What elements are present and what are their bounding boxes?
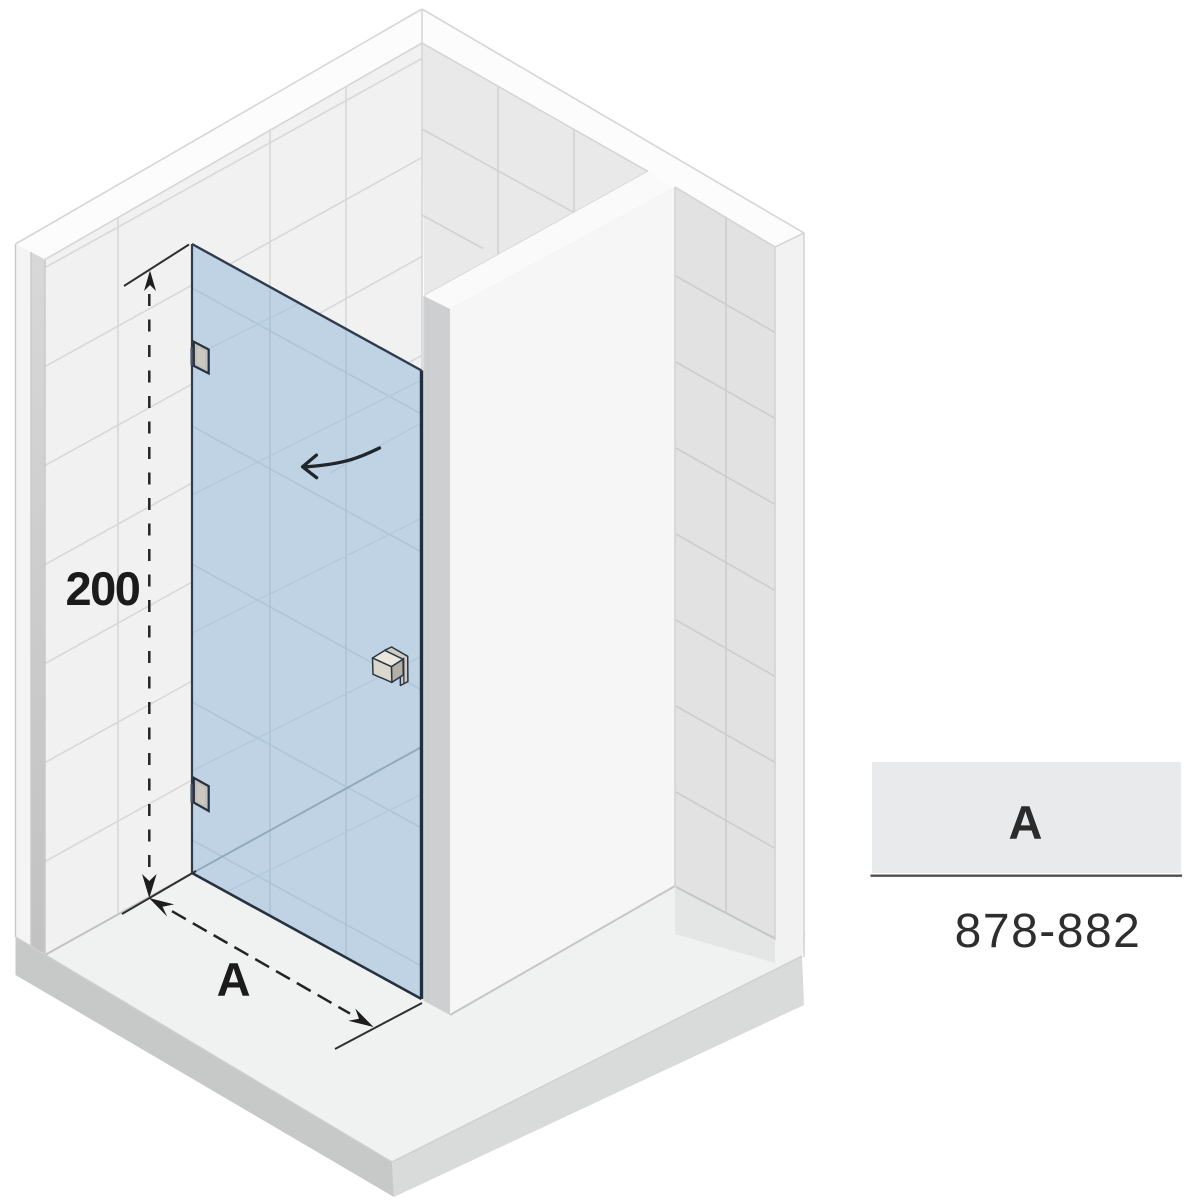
svg-text:878-882: 878-882 — [955, 905, 1142, 958]
svg-text:A: A — [217, 953, 251, 1006]
svg-text:200: 200 — [66, 562, 140, 615]
svg-text:A: A — [1009, 796, 1043, 849]
